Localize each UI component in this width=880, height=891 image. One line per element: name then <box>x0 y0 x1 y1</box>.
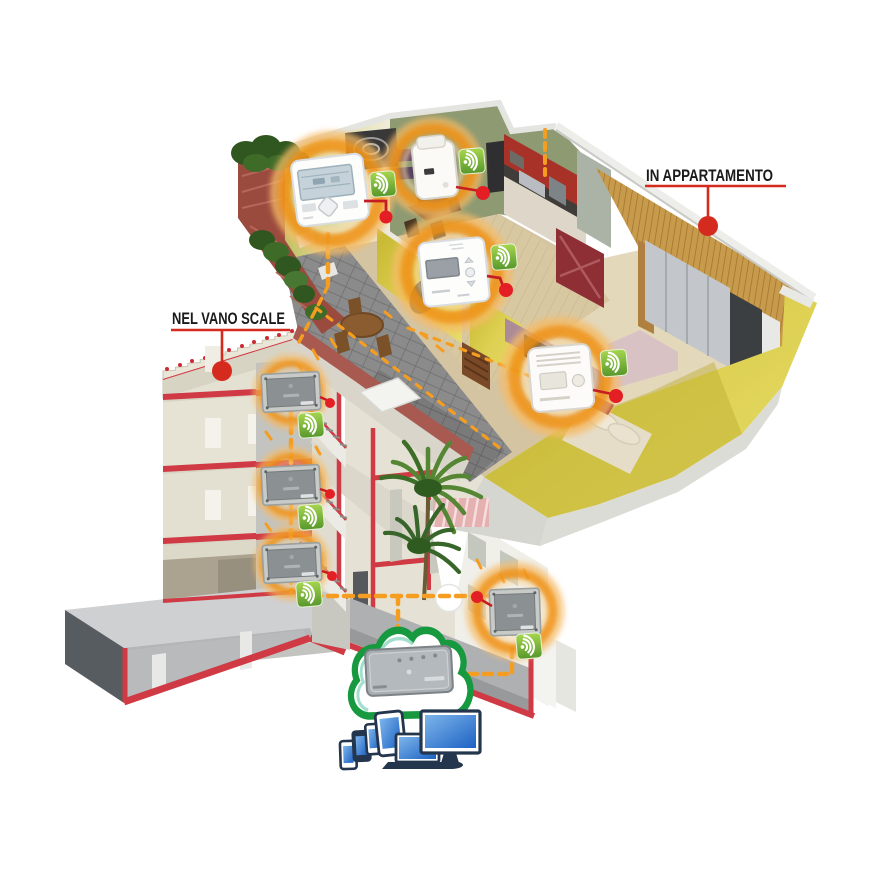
svg-text:IN APPARTAMENTO: IN APPARTAMENTO <box>646 167 773 185</box>
svg-text:NEL VANO SCALE: NEL VANO SCALE <box>172 310 285 328</box>
